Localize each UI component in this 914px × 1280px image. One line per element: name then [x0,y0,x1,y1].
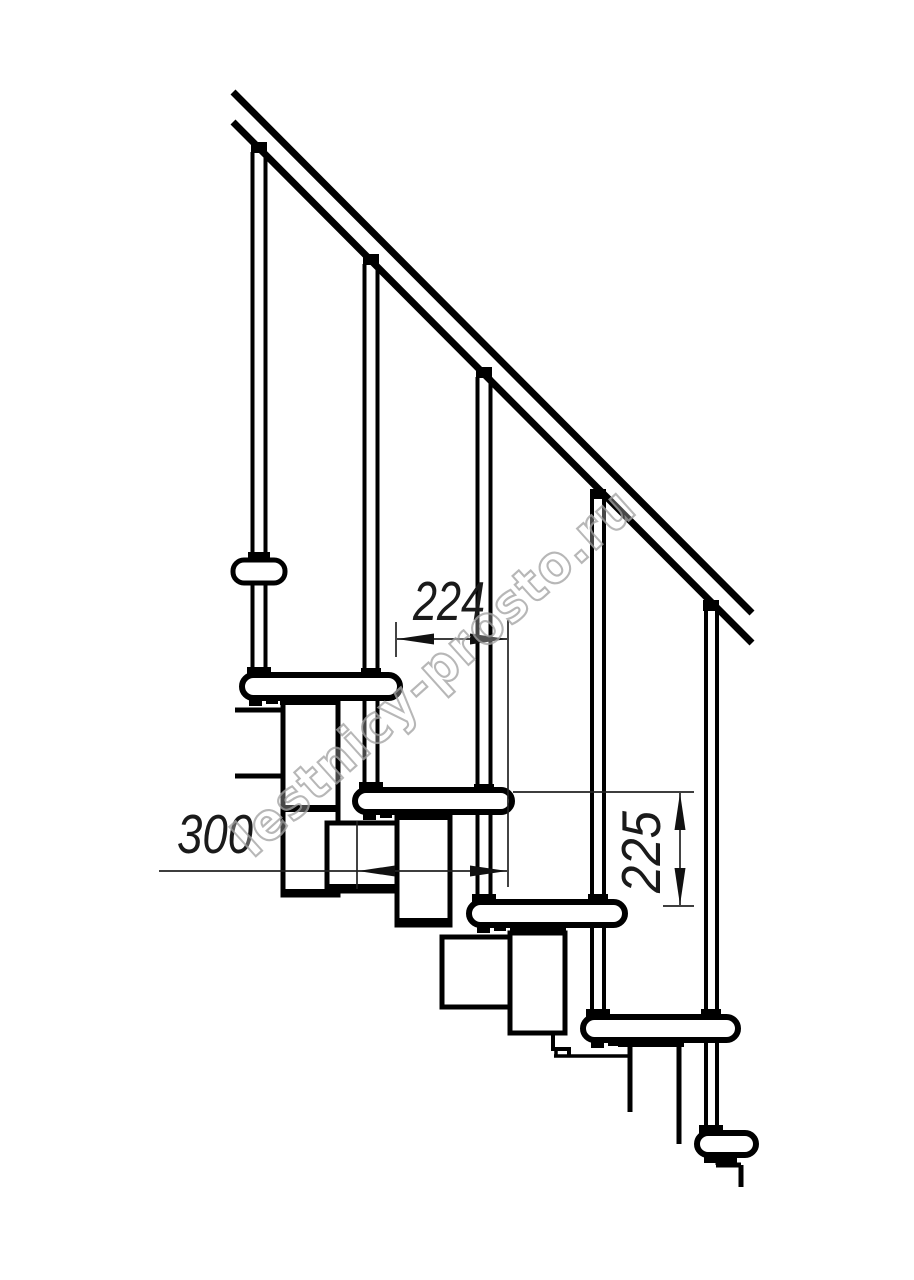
foot-tread-3-a [477,925,490,933]
arrowhead-225-bottom [675,868,686,905]
baluster-5 [706,610,717,1133]
collar-baluster-3-tread-2 [474,784,494,792]
tread-4 [583,1017,738,1040]
module-2-drop-box [397,815,450,925]
bottom-bracket-tail [716,1160,741,1187]
clamp-tread-4 [618,1040,684,1047]
module-2-drop-plate [397,918,450,925]
foot-tread-4-b [608,1040,620,1046]
module-2-box [327,823,404,891]
tread-2 [355,790,512,812]
foot-tread-1-a [249,698,262,706]
module-3-box [442,937,518,1007]
clamp-bottom-bracket [704,1155,737,1163]
staircase-drawing-page: 224 300 225 lestnicy-prosto.ru [0,0,914,1280]
module-2-bottom-plate [327,884,404,891]
collar-baluster-2-tread-2 [359,782,383,791]
collar-baluster-1-tread-1 [247,667,271,676]
bottom-bracket [697,1133,756,1155]
collar-baluster-4-tread-3 [588,894,608,902]
clamp-tread-1 [280,697,337,705]
foot-tread-2-b [380,812,392,818]
baluster-4 [592,498,604,1017]
baluster-1 [253,152,266,675]
dimension-label-225: 225 [610,811,672,894]
collar-baluster-4-tread-4 [586,1009,610,1018]
module-3-drop-box [510,933,565,1033]
clamp-tread-2 [397,812,450,820]
foot-tread-2-a [363,812,376,820]
foot-tread-3-b [494,925,506,931]
clamp-tread-3 [510,925,566,933]
arrowhead-225-top [675,793,686,830]
collar-baluster-5-tread-4 [701,1009,721,1017]
collar-baluster-3-tread-3 [472,894,496,903]
foot-tread-1-b [266,698,278,704]
rail-mount-bracket [233,560,285,583]
collar-baluster-2-tread-1 [361,668,381,676]
staircase-technical-drawing: 224 300 225 lestnicy-prosto.ru [0,0,914,1280]
tread-3 [469,902,625,925]
collar-baluster-5-bracket [699,1125,723,1134]
collar-baluster-1-bracket [248,552,270,561]
foot-tread-4-a [591,1040,604,1048]
